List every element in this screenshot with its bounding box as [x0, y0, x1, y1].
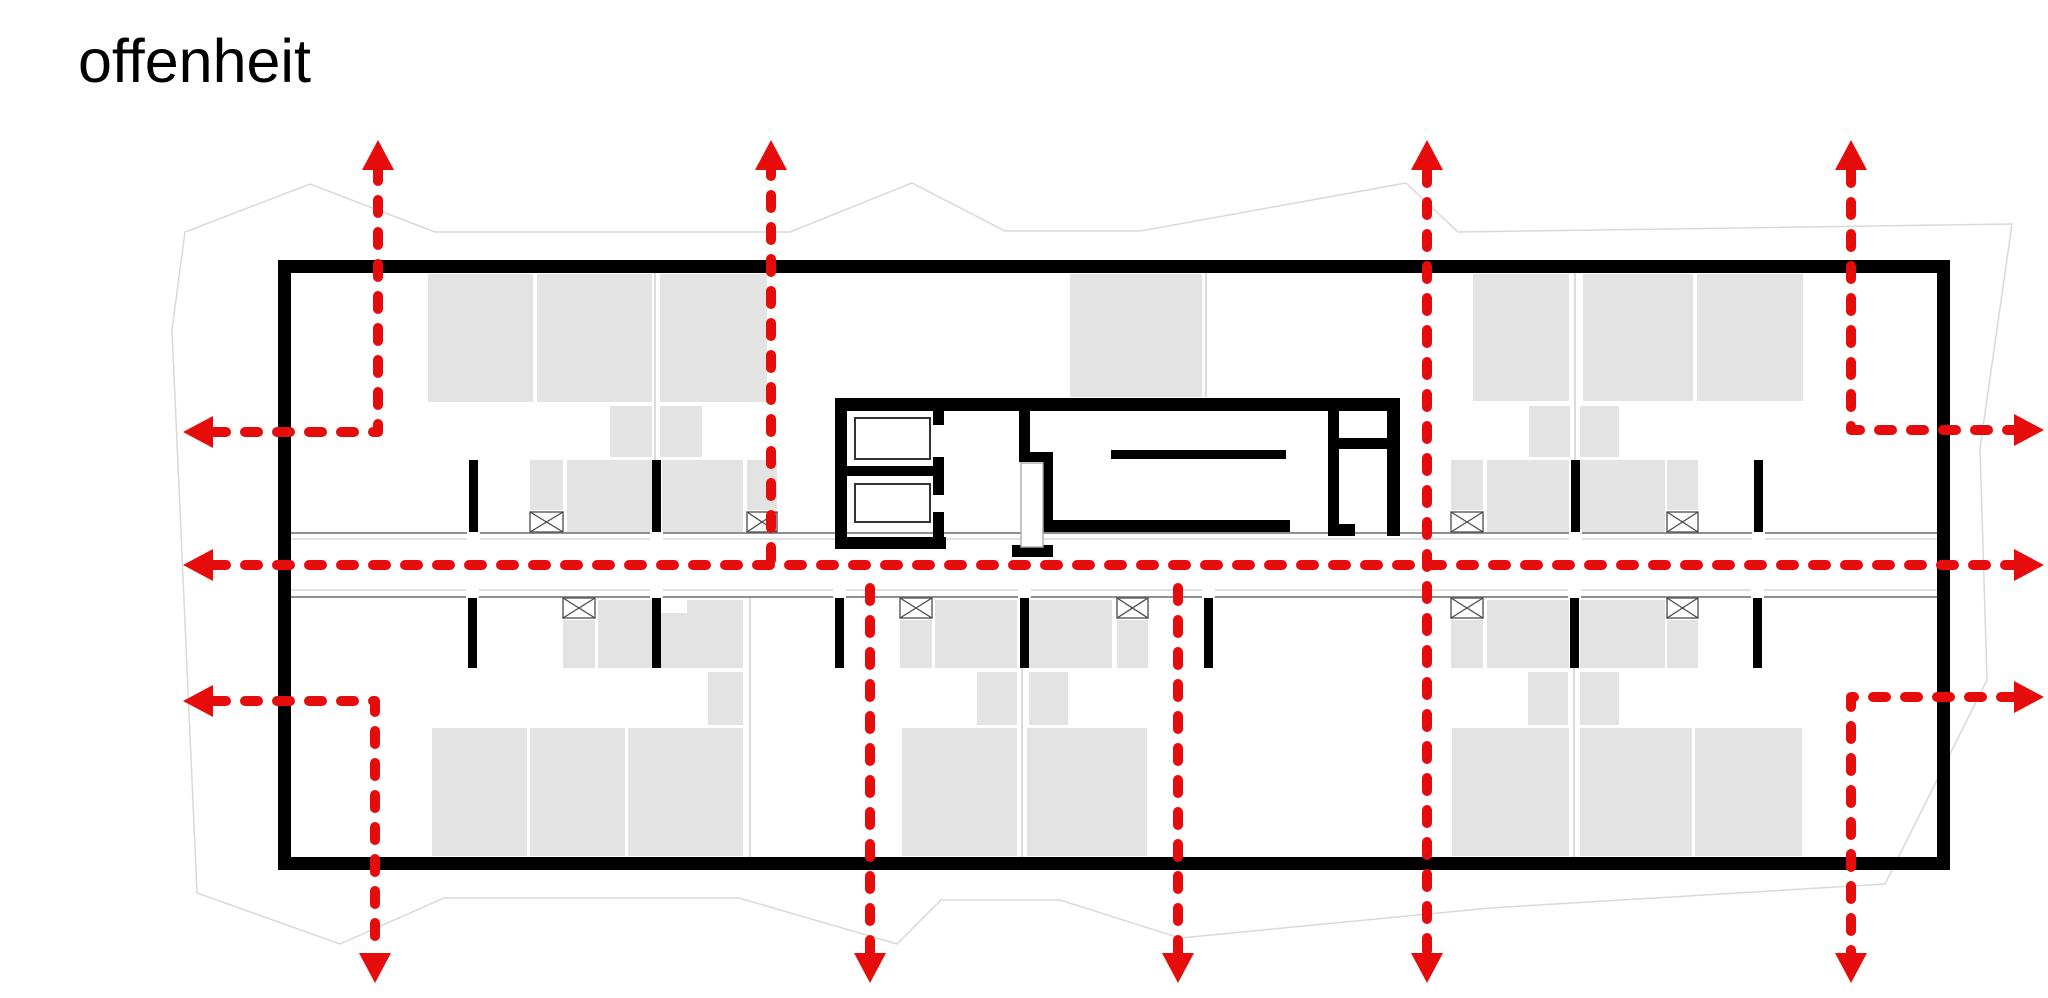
furniture-block	[598, 600, 652, 668]
furniture-block	[1451, 460, 1483, 510]
wall-segment	[278, 857, 1950, 870]
arrow-head	[854, 953, 886, 983]
arrow-shaft	[1851, 697, 2014, 953]
furniture-block	[1487, 600, 1569, 668]
wall-segment	[1336, 438, 1390, 449]
wall-segment	[835, 598, 844, 668]
slide: offenheit	[0, 0, 2048, 998]
arrow-shaft	[213, 701, 375, 953]
crossing-symbol	[1667, 512, 1698, 532]
furniture-block	[537, 274, 652, 402]
crossing-symbol	[530, 512, 563, 532]
arrow-head	[2014, 414, 2044, 446]
arrow-head	[1162, 953, 1194, 983]
furniture-block	[1695, 728, 1802, 856]
arrow-head	[1411, 953, 1443, 983]
furniture-block	[1697, 274, 1803, 401]
furniture-block	[1580, 728, 1692, 856]
wall-segment	[1753, 598, 1762, 668]
crossing-symbol	[1667, 598, 1698, 618]
arrow-head	[1835, 140, 1867, 170]
arrow-head	[183, 416, 213, 448]
furniture-block	[1529, 406, 1570, 457]
arrow-head	[2014, 681, 2044, 713]
furniture-block	[428, 274, 533, 402]
furniture-block	[661, 613, 687, 668]
furniture-block	[1580, 460, 1665, 532]
wall-segment	[1571, 460, 1580, 532]
crossing-symbol	[1451, 512, 1483, 532]
furniture-block	[1070, 274, 1202, 397]
furniture-block	[1452, 728, 1569, 856]
elevator-cabin	[855, 418, 930, 459]
furniture-block	[708, 672, 743, 725]
furniture-block	[563, 620, 595, 668]
wall-segment	[847, 466, 933, 476]
furniture-block	[530, 728, 625, 856]
furniture-block	[1487, 460, 1569, 532]
furniture-block	[567, 460, 652, 532]
wall-segment	[1328, 398, 1339, 536]
furniture-block	[1117, 620, 1148, 668]
furniture-block	[900, 620, 932, 668]
wall-segment	[469, 460, 478, 532]
wall-segment	[835, 537, 946, 549]
openness-arrow	[1162, 588, 1194, 983]
furniture-block	[660, 274, 767, 402]
wall-segment	[1387, 398, 1400, 536]
furniture-block	[530, 460, 563, 510]
furniture-block	[662, 460, 743, 532]
furniture-block	[687, 600, 743, 668]
furniture-block	[1667, 620, 1698, 668]
furniture-block	[1580, 406, 1619, 457]
arrow-head	[183, 549, 213, 581]
arrow-shaft	[1851, 170, 2014, 430]
wall-segment	[1111, 450, 1286, 459]
wall-segment	[835, 398, 1400, 411]
floor-plan-diagram	[0, 0, 2048, 998]
arrow-head	[1411, 140, 1443, 170]
furniture-block	[1029, 672, 1068, 725]
furniture-block	[1027, 728, 1147, 856]
furniture-block	[1528, 672, 1568, 725]
furniture-block	[1580, 672, 1619, 725]
wall-segment	[278, 260, 1950, 273]
crossing-symbol	[563, 598, 595, 618]
wall-segment	[1020, 598, 1029, 668]
crossing-symbol	[1451, 598, 1483, 618]
wall-segment	[1204, 598, 1213, 668]
furniture-block	[660, 406, 702, 457]
furniture-block	[935, 600, 1017, 668]
arrow-shaft	[213, 170, 378, 432]
core-fixtures	[855, 418, 1043, 547]
wall-segment	[652, 460, 661, 532]
crossing-symbol	[900, 598, 932, 618]
furniture-block	[1667, 460, 1698, 510]
furniture-block	[977, 672, 1017, 725]
furniture-block	[610, 406, 652, 457]
openness-arrow	[183, 549, 2044, 581]
furniture-block	[432, 728, 527, 856]
arrow-head	[755, 140, 787, 170]
wall-segment	[933, 512, 944, 549]
arrow-head	[2014, 549, 2044, 581]
arrow-head	[359, 953, 391, 983]
arrow-head	[1835, 953, 1867, 983]
wall-segment	[933, 411, 944, 425]
elevator-cabin	[855, 484, 930, 522]
wall-segment	[1754, 460, 1763, 532]
furniture-block	[1451, 620, 1483, 668]
arrow-head	[362, 140, 394, 170]
furniture-block	[1473, 274, 1569, 401]
furniture-block	[628, 728, 743, 856]
wall-segment	[1328, 524, 1355, 536]
wall-segment	[1570, 598, 1579, 668]
openness-arrow	[854, 588, 886, 983]
furniture-block	[1029, 600, 1112, 668]
furniture-block	[1583, 274, 1693, 401]
crossing-symbol	[1117, 598, 1148, 618]
furniture-block	[902, 728, 1017, 856]
wall-segment	[468, 598, 477, 668]
wall-segment	[652, 598, 661, 668]
stair-shaft	[1021, 463, 1043, 547]
wall-segment	[1044, 520, 1290, 532]
furniture-block	[1580, 600, 1665, 668]
wall-segment	[933, 457, 944, 495]
wall-segment	[835, 398, 847, 549]
